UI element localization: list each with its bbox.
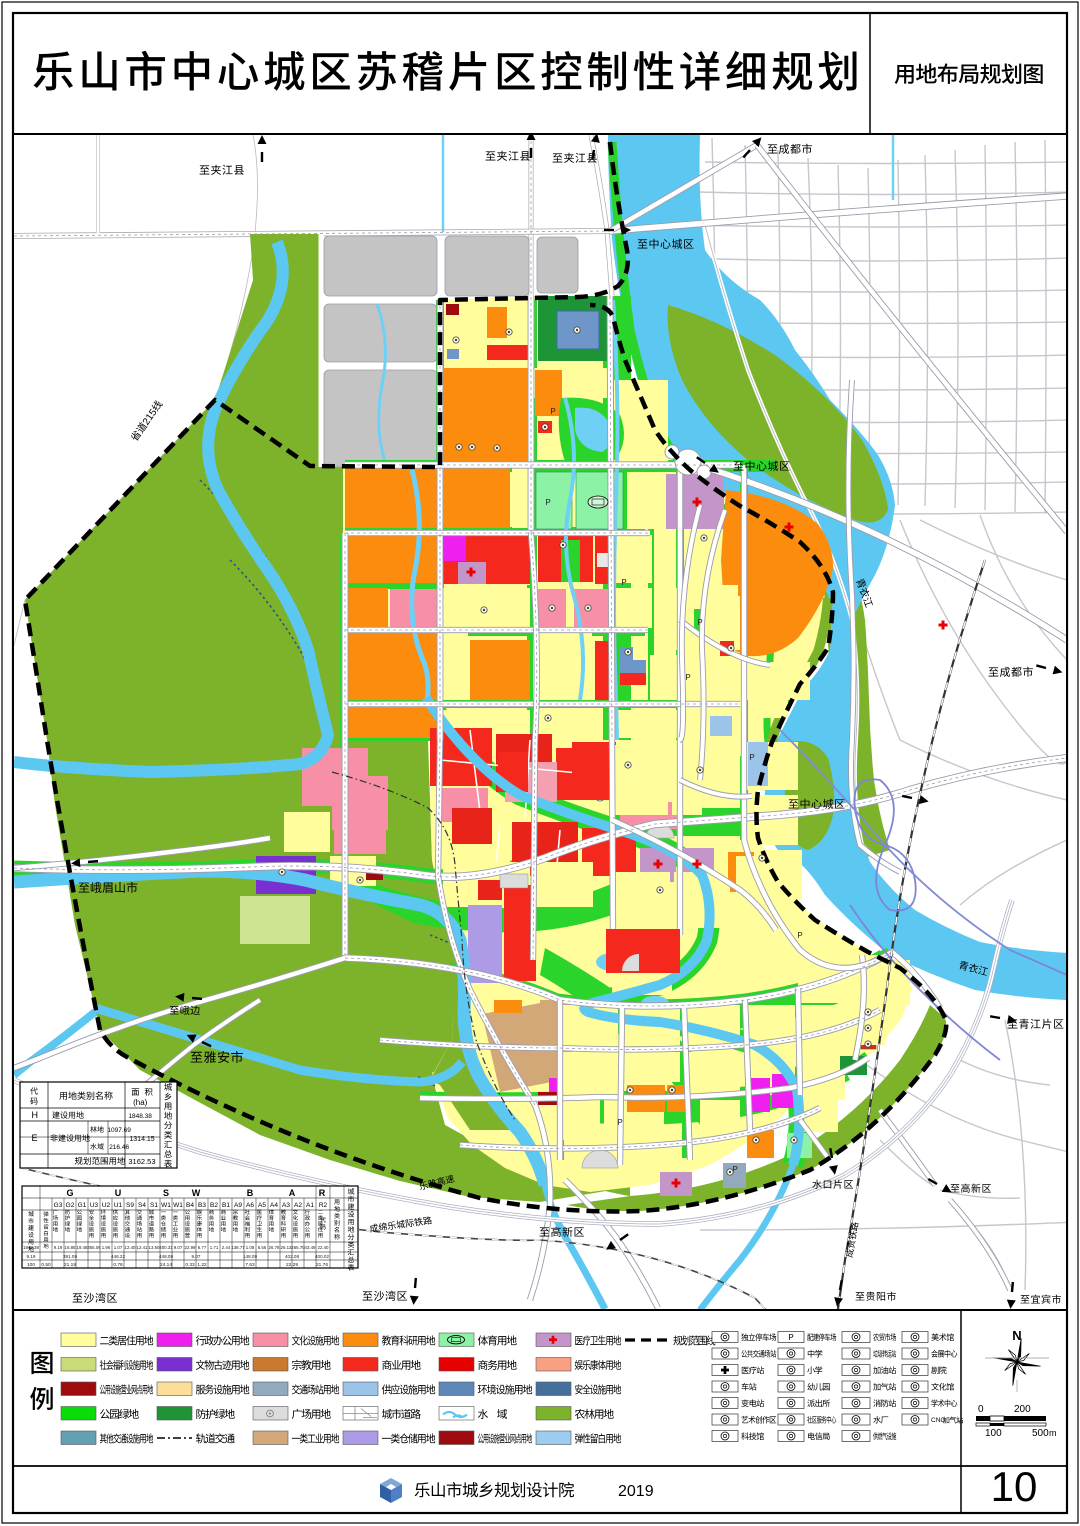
svg-text:26.78: 26.78 <box>269 1245 281 1250</box>
svg-text:100: 100 <box>985 1428 1002 1439</box>
svg-text:P: P <box>685 673 690 682</box>
svg-text:1848.38: 1848.38 <box>128 1113 152 1120</box>
svg-text:12.40: 12.40 <box>125 1245 137 1250</box>
svg-text:9.07: 9.07 <box>174 1245 183 1250</box>
svg-text:10: 10 <box>991 1463 1038 1510</box>
svg-text:0.33: 0.33 <box>185 1262 195 1268</box>
svg-text:P: P <box>545 498 550 507</box>
svg-text:0.50: 0.50 <box>41 1262 51 1268</box>
svg-text:100: 100 <box>27 1262 35 1268</box>
svg-text:W: W <box>192 1188 201 1198</box>
svg-text:W1: W1 <box>161 1202 171 1209</box>
svg-text:0: 0 <box>978 1404 984 1415</box>
svg-text:43.49: 43.49 <box>305 1245 317 1250</box>
svg-text:24.14: 24.14 <box>160 1262 172 1268</box>
svg-text:B4: B4 <box>186 1202 194 1209</box>
svg-text:E: E <box>32 1133 38 1143</box>
svg-text:1.22: 1.22 <box>197 1262 207 1268</box>
svg-text:U1: U1 <box>114 1202 123 1209</box>
svg-text:W1: W1 <box>173 1202 183 1209</box>
svg-text:500: 500 <box>1032 1428 1049 1439</box>
svg-text:448.09: 448.09 <box>159 1254 173 1259</box>
svg-text:P: P <box>788 1333 793 1342</box>
svg-text:0.78: 0.78 <box>113 1262 123 1268</box>
svg-text:6.56: 6.56 <box>258 1245 267 1250</box>
svg-text:148.09: 148.09 <box>243 1254 257 1259</box>
svg-text:402.08: 402.08 <box>285 1254 299 1259</box>
svg-text:9.07: 9.07 <box>192 1254 201 1259</box>
svg-text:2.44: 2.44 <box>222 1245 231 1250</box>
svg-text:S: S <box>163 1188 169 1198</box>
svg-text:A1: A1 <box>306 1202 314 1209</box>
svg-text:B3: B3 <box>198 1202 206 1209</box>
svg-text:446.22: 446.22 <box>111 1254 125 1259</box>
svg-text:S4: S4 <box>138 1202 146 1209</box>
svg-text:A3: A3 <box>282 1202 290 1209</box>
svg-text:N: N <box>1012 1328 1021 1343</box>
svg-text:1097.69: 1097.69 <box>107 1127 131 1134</box>
svg-text:16.85: 16.85 <box>65 1245 77 1250</box>
svg-text:A4: A4 <box>270 1202 278 1209</box>
svg-text:P: P <box>621 578 626 587</box>
svg-text:U2: U2 <box>102 1202 111 1209</box>
svg-text:265.70: 265.70 <box>291 1245 305 1250</box>
svg-text:U: U <box>115 1188 122 1198</box>
svg-text:S1: S1 <box>150 1202 158 1209</box>
svg-text:P: P <box>749 753 754 762</box>
svg-text:1.96: 1.96 <box>102 1245 111 1250</box>
svg-text:B: B <box>247 1188 254 1198</box>
svg-text:R2: R2 <box>319 1202 328 1209</box>
svg-text:H: H <box>32 1110 39 1120</box>
svg-text:2019: 2019 <box>618 1483 654 1500</box>
svg-text:B2: B2 <box>210 1202 218 1209</box>
svg-text:6.77: 6.77 <box>198 1245 207 1250</box>
svg-text:A6: A6 <box>246 1202 254 1209</box>
svg-text:3162.53: 3162.53 <box>128 1157 155 1166</box>
svg-text:P: P <box>697 618 702 627</box>
svg-text:22.29: 22.29 <box>286 1262 298 1268</box>
svg-text:S9: S9 <box>126 1202 134 1209</box>
svg-text:G: G <box>66 1188 73 1198</box>
svg-text:B1: B1 <box>222 1202 230 1209</box>
svg-text:1.08: 1.08 <box>246 1245 255 1250</box>
svg-text:21.18: 21.18 <box>64 1262 76 1268</box>
svg-text:P: P <box>797 931 802 940</box>
svg-text:P: P <box>617 1118 622 1127</box>
svg-text:22.40: 22.40 <box>318 1245 330 1250</box>
svg-text:9.19: 9.19 <box>27 1254 36 1259</box>
svg-text:A: A <box>289 1188 296 1198</box>
svg-text:U3: U3 <box>90 1202 99 1209</box>
svg-text:22.99: 22.99 <box>185 1245 197 1250</box>
svg-text:400.02: 400.02 <box>315 1254 329 1259</box>
svg-text:(ha): (ha) <box>133 1098 148 1107</box>
svg-text:A9: A9 <box>234 1202 242 1209</box>
svg-text:m: m <box>1049 1428 1057 1438</box>
svg-text:G1: G1 <box>78 1202 87 1209</box>
svg-text:138.77: 138.77 <box>231 1245 245 1250</box>
svg-text:A2: A2 <box>294 1202 302 1209</box>
svg-text:G3: G3 <box>54 1202 63 1209</box>
svg-text:1314.15: 1314.15 <box>129 1136 154 1143</box>
svg-text:12.41: 12.41 <box>137 1245 149 1250</box>
svg-text:7.63: 7.63 <box>245 1262 255 1268</box>
svg-text:A5: A5 <box>258 1202 266 1209</box>
svg-text:200: 200 <box>1014 1404 1031 1415</box>
svg-text:355.06: 355.06 <box>87 1245 101 1250</box>
svg-text:391.09: 391.09 <box>63 1254 77 1259</box>
svg-text:9.19: 9.19 <box>54 1245 63 1250</box>
svg-text:1.71: 1.71 <box>210 1245 219 1250</box>
svg-text:1848.38: 1848.38 <box>23 1245 39 1250</box>
svg-text:1.07: 1.07 <box>114 1245 123 1250</box>
svg-text:400.31: 400.31 <box>159 1245 173 1250</box>
svg-text:G2: G2 <box>66 1202 75 1209</box>
svg-text:216.46: 216.46 <box>109 1144 129 1151</box>
svg-text:R: R <box>319 1188 326 1198</box>
svg-text:P: P <box>550 407 555 416</box>
svg-text:21.76: 21.76 <box>316 1262 328 1268</box>
